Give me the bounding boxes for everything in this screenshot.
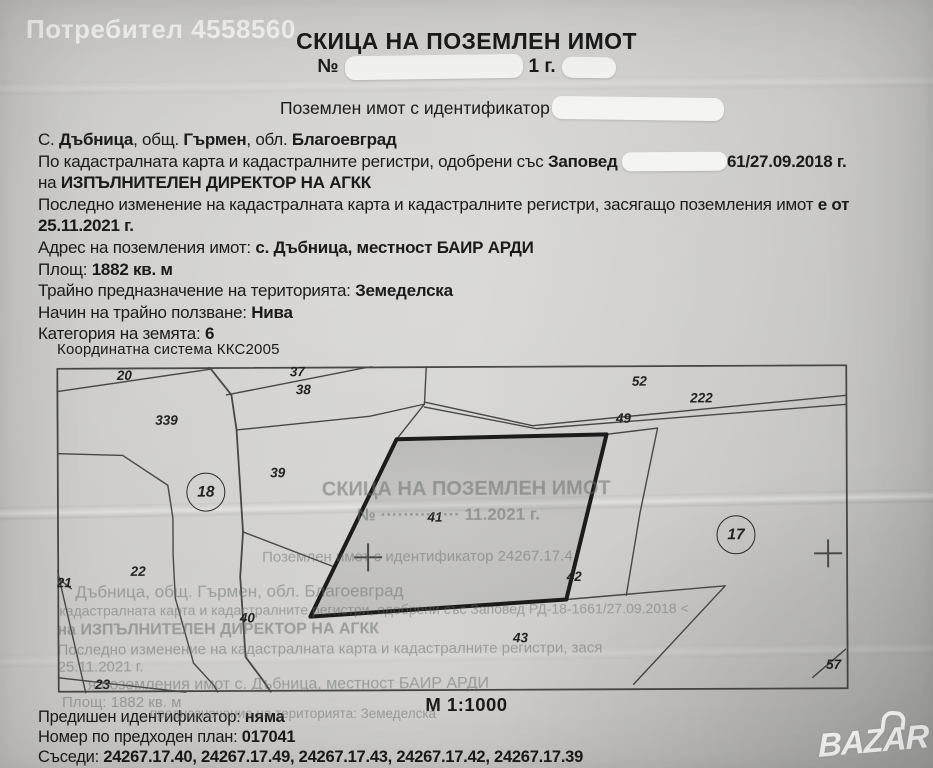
text-segment: Адрес на поземления имот: (38, 238, 255, 257)
text-segment: е от (818, 195, 849, 214)
property-info: С. Дъбница, общ. Гърмен, обл. Благоевгра… (38, 129, 933, 345)
text-line: Съседи: 24267.17.40, 24267.17.49, 24267.… (38, 747, 583, 767)
map-parcel-label-52: 52 (632, 374, 647, 389)
text-segment: , обл. (246, 130, 292, 149)
redaction-blob (552, 96, 724, 121)
text-segment: 25.11.2021 г. (38, 216, 134, 235)
map-parcel-label-21: 21 (57, 575, 72, 590)
map-sheet-circle-18: 18 (186, 472, 225, 511)
text-line: Площ: 1882 кв. м (38, 259, 933, 281)
text-line: С. Дъбница, общ. Гърмен, обл. Благоевгра… (38, 129, 933, 151)
map-parcel-label-22: 22 (131, 564, 146, 579)
document-title: СКИЦА НА ПОЗЕМЛЕН ИМОТ (0, 28, 933, 55)
text-segment: 61/27.09.2018 г. (727, 152, 847, 171)
bleed-through-text: я поземления имот с. Дъбница, местност Б… (88, 675, 489, 694)
map-labels-layer: 20339373839522224941222140234243571817СК… (56, 364, 848, 693)
redaction-blob (622, 151, 727, 171)
text-segment: Номер по предходен план: (38, 728, 242, 746)
text-line: на ИЗПЪЛНИТЕЛЕН ДИРЕКТОР НА АГКК (38, 172, 933, 194)
map-parcel-label-37: 37 (290, 364, 305, 379)
text-line: По кадастралната карта и кадастралните р… (38, 151, 933, 173)
bleed-through-text: № ·············· 11.2021 г. (357, 505, 540, 526)
bag-handle-icon (881, 710, 907, 729)
bleed-through-text: Поземлен имот с идентификатор 24267.17.4 (262, 547, 573, 565)
text-segment: Начин на трайно ползване: (38, 303, 251, 322)
identifier-label: Поземлен имот с идентификатор (280, 98, 550, 119)
bleed-through-text: Дъбница, общ. Гърмен, обл. Благоевград (75, 581, 403, 602)
text-segment: ИЗПЪЛНИТЕЛЕН ДИРЕКТОР НА АГКК (61, 173, 371, 192)
text-segment: С. (38, 130, 59, 149)
text-segment: Последно изменение на кадастралната карт… (38, 195, 818, 214)
identifier-line: Поземлен имот с идентификатор (280, 97, 724, 120)
text-segment: 1882 кв. м (92, 260, 173, 279)
text-segment: 24267.17.40, 24267.17.49, 24267.17.43, 2… (103, 748, 583, 766)
document-number-line: № 1 г. (0, 55, 933, 79)
text-segment: Трайно предназначение на територията: (38, 281, 355, 300)
coordinate-system-label: Координатна система ККС2005 (57, 341, 280, 358)
text-segment: Нива (251, 303, 292, 322)
text-segment: Земеделска (355, 281, 453, 300)
bleed-through-text: 25.11.2021 г. (58, 658, 144, 675)
map-sheet-circle-17: 17 (716, 515, 755, 554)
text-segment: По кадастралната карта и кадастралните р… (38, 152, 548, 171)
text-segment: Заповед (548, 152, 622, 171)
text-segment: , общ. (133, 130, 183, 149)
text-line: Начин на трайно ползване: Нива (38, 302, 933, 324)
text-segment: 017041 (242, 728, 296, 746)
text-segment: Благоевград (292, 130, 397, 149)
text-line: 25.11.2021 г. (38, 215, 933, 237)
cadastral-map: 20339373839522224941222140234243571817СК… (56, 364, 848, 693)
map-parcel-label-57: 57 (826, 657, 841, 672)
bazar-logo: BAZAR (818, 717, 929, 765)
map-parcel-label-49: 49 (616, 411, 631, 426)
text-line: Номер по предходен план: 017041 (38, 727, 583, 747)
text-line: Адрес на поземления имот: с. Дъбница, ме… (38, 237, 933, 259)
map-parcel-label-222: 222 (690, 390, 713, 405)
map-parcel-label-38: 38 (296, 382, 311, 397)
redaction-blob (561, 56, 615, 78)
text-segment: Гърмен (183, 130, 246, 149)
grid-cross-mark (814, 539, 842, 567)
map-parcel-label-42: 42 (567, 569, 582, 584)
bleed-through-text: СКИЦА НА ПОЗЕМЛЕН ИМОТ (322, 477, 611, 501)
map-parcel-label-339: 339 (155, 413, 178, 428)
bazar-logo-text: BAZAR (818, 717, 929, 764)
redaction-blob (344, 54, 522, 80)
text-segment: Съседи: (38, 748, 103, 766)
cross-bar (827, 539, 829, 567)
text-segment: на (38, 173, 61, 192)
text-segment: с. Дъбница, местност БАИР АРДИ (255, 238, 533, 257)
text-segment: Дъбница (59, 130, 133, 149)
bleed-through-text: предназначение на територията: Земеделск… (150, 706, 436, 721)
map-parcel-label-39: 39 (270, 465, 285, 480)
bleed-through-text: кадастралната карта и кадастралните реги… (59, 600, 688, 619)
text-line: Трайно предназначение на територията: Зе… (38, 280, 933, 302)
bleed-through-text: на ИЗПЪЛНИТЕЛЕН ДИРЕКТОР НА АГКК (57, 620, 379, 639)
document-photo: Потребител 4558560 СКИЦА НА ПОЗЕМЛЕН ИМО… (0, 0, 933, 768)
text-segment: Площ: (38, 260, 92, 279)
number-prefix: № (317, 56, 338, 78)
number-visible-suffix: 1 г. (529, 56, 556, 78)
text-line: Последно изменение на кадастралната карт… (38, 194, 933, 216)
bleed-through-text: Последно изменение на кадастралната карт… (57, 639, 602, 658)
map-parcel-label-20: 20 (117, 368, 132, 383)
